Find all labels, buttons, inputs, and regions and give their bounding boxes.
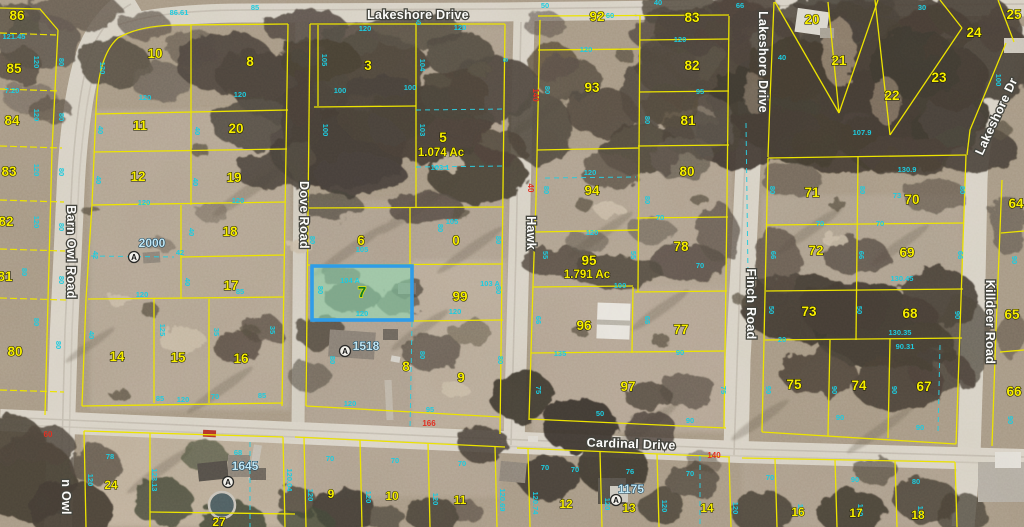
svg-text:71: 71 — [804, 185, 820, 200]
svg-text:120: 120 — [139, 93, 152, 102]
svg-text:73: 73 — [893, 191, 901, 200]
svg-text:80: 80 — [7, 344, 22, 359]
svg-text:40: 40 — [526, 184, 535, 193]
svg-text:130.45: 130.45 — [891, 274, 914, 283]
svg-text:77: 77 — [673, 322, 688, 337]
svg-text:40: 40 — [778, 53, 786, 62]
svg-text:Lakeshore Drive: Lakeshore Drive — [756, 11, 770, 113]
svg-text:20: 20 — [804, 12, 819, 27]
svg-text:17: 17 — [849, 506, 863, 520]
svg-text:8: 8 — [501, 58, 510, 62]
svg-text:120.74: 120.74 — [531, 492, 540, 516]
svg-text:Barn Owl Road: Barn Owl Road — [64, 205, 78, 299]
svg-text:85: 85 — [258, 391, 266, 400]
svg-text:80: 80 — [316, 286, 325, 294]
svg-text:80: 80 — [679, 164, 694, 179]
svg-text:130.9: 130.9 — [898, 165, 917, 174]
svg-text:55: 55 — [629, 251, 638, 259]
svg-text:60: 60 — [44, 430, 53, 439]
svg-text:90: 90 — [851, 475, 859, 484]
svg-text:42: 42 — [91, 251, 100, 259]
svg-text:80: 80 — [958, 186, 967, 194]
svg-text:90: 90 — [676, 348, 684, 357]
svg-text:17: 17 — [223, 278, 238, 293]
svg-text:60: 60 — [606, 11, 614, 20]
svg-text:66: 66 — [857, 251, 866, 259]
svg-text:80: 80 — [643, 116, 652, 124]
svg-text:90.31: 90.31 — [896, 342, 915, 351]
svg-text:99: 99 — [452, 289, 467, 304]
svg-text:80: 80 — [494, 236, 503, 244]
svg-text:90: 90 — [890, 386, 899, 394]
svg-text:1645: 1645 — [232, 459, 259, 473]
svg-text:35: 35 — [268, 326, 277, 334]
svg-text:80: 80 — [32, 318, 41, 326]
svg-text:90: 90 — [764, 386, 773, 394]
svg-text:66: 66 — [1006, 384, 1022, 399]
svg-text:70: 70 — [458, 459, 466, 468]
svg-text:105: 105 — [446, 217, 459, 226]
svg-text:70: 70 — [686, 469, 694, 478]
svg-text:65: 65 — [1004, 307, 1020, 322]
svg-text:20: 20 — [228, 121, 243, 136]
svg-text:120: 120 — [86, 474, 95, 487]
svg-text:120: 120 — [234, 90, 247, 99]
svg-text:6: 6 — [357, 233, 365, 248]
svg-text:21: 21 — [831, 53, 847, 68]
svg-text:40: 40 — [654, 0, 662, 7]
svg-text:80: 80 — [912, 477, 920, 486]
svg-text:85: 85 — [6, 61, 22, 76]
svg-text:90: 90 — [953, 311, 962, 319]
svg-text:2000: 2000 — [139, 236, 166, 250]
svg-text:105: 105 — [320, 54, 329, 67]
svg-text:123.13: 123.13 — [150, 469, 159, 492]
svg-text:107.9: 107.9 — [853, 128, 872, 137]
svg-text:121.45: 121.45 — [3, 32, 26, 41]
svg-text:70: 70 — [766, 473, 774, 482]
svg-text:15: 15 — [170, 350, 186, 365]
svg-text:n Owl: n Owl — [59, 479, 73, 515]
svg-text:86: 86 — [9, 8, 25, 23]
svg-text:93: 93 — [584, 80, 600, 95]
svg-text:70: 70 — [696, 261, 704, 270]
svg-text:19: 19 — [226, 170, 241, 185]
svg-text:90: 90 — [686, 416, 694, 425]
svg-text:40: 40 — [191, 178, 200, 186]
svg-text:80: 80 — [643, 196, 652, 204]
svg-text:9: 9 — [328, 487, 335, 501]
svg-text:72: 72 — [808, 243, 823, 258]
svg-text:120: 120 — [584, 168, 597, 177]
svg-text:40: 40 — [94, 176, 103, 184]
svg-text:68: 68 — [234, 448, 242, 457]
svg-text:50: 50 — [855, 306, 864, 314]
svg-text:97: 97 — [620, 379, 635, 394]
svg-text:100: 100 — [994, 74, 1003, 87]
svg-text:22: 22 — [884, 88, 899, 103]
svg-text:120: 120 — [359, 24, 372, 33]
svg-text:12: 12 — [559, 497, 573, 511]
svg-text:120: 120 — [454, 23, 467, 32]
svg-text:120: 120 — [32, 164, 41, 177]
svg-text:14: 14 — [109, 349, 125, 364]
svg-text:25: 25 — [1006, 7, 1022, 22]
svg-text:86.61: 86.61 — [170, 8, 189, 17]
svg-text:90: 90 — [916, 423, 924, 432]
svg-text:103.1: 103.1 — [431, 163, 450, 172]
svg-text:120: 120 — [32, 109, 41, 122]
svg-text:80: 80 — [543, 86, 552, 94]
svg-text:75: 75 — [786, 377, 802, 392]
svg-text:1.074 Ac: 1.074 Ac — [418, 147, 465, 159]
svg-text:74: 74 — [851, 378, 867, 393]
svg-text:A: A — [225, 478, 231, 487]
svg-text:A: A — [613, 496, 619, 505]
svg-text:10: 10 — [147, 46, 162, 61]
svg-text:0: 0 — [452, 233, 460, 248]
svg-text:Dove Road: Dove Road — [297, 181, 311, 249]
svg-text:Lakeshore Drive: Lakeshore Drive — [367, 8, 469, 22]
svg-text:80: 80 — [436, 224, 445, 232]
svg-text:70: 70 — [876, 219, 884, 228]
svg-text:140: 140 — [707, 451, 721, 460]
svg-text:5: 5 — [439, 130, 447, 145]
svg-text:166: 166 — [422, 419, 436, 428]
svg-text:A: A — [131, 253, 137, 262]
svg-text:81: 81 — [680, 113, 696, 128]
svg-text:76: 76 — [626, 467, 634, 476]
svg-text:80: 80 — [494, 286, 503, 294]
svg-text:120: 120 — [674, 35, 687, 44]
svg-text:80: 80 — [496, 356, 505, 364]
svg-text:40: 40 — [193, 127, 202, 135]
svg-text:14: 14 — [700, 501, 714, 515]
svg-text:20: 20 — [778, 335, 786, 344]
svg-text:85: 85 — [251, 3, 259, 12]
svg-text:80: 80 — [20, 268, 29, 276]
svg-text:11: 11 — [133, 118, 148, 133]
svg-text:95: 95 — [581, 253, 597, 268]
svg-text:120: 120 — [138, 198, 151, 207]
svg-text:66: 66 — [736, 1, 744, 10]
svg-text:Killdeer Road: Killdeer Road — [983, 280, 997, 364]
svg-text:50: 50 — [767, 306, 776, 314]
svg-text:70: 70 — [571, 465, 579, 474]
svg-text:90: 90 — [830, 386, 839, 394]
svg-text:80: 80 — [542, 186, 551, 194]
svg-text:16: 16 — [233, 351, 249, 366]
svg-text:120: 120 — [580, 45, 593, 54]
svg-text:120: 120 — [660, 500, 669, 513]
svg-text:120: 120 — [586, 228, 599, 237]
svg-text:30: 30 — [918, 3, 926, 12]
svg-text:100: 100 — [334, 86, 347, 95]
svg-text:24: 24 — [104, 478, 118, 492]
svg-text:90: 90 — [1010, 256, 1019, 264]
svg-text:66: 66 — [956, 251, 965, 259]
svg-text:50: 50 — [596, 409, 604, 418]
svg-text:120: 120 — [136, 290, 149, 299]
svg-text:120: 120 — [177, 395, 190, 404]
svg-text:95: 95 — [696, 87, 704, 96]
svg-text:1518: 1518 — [353, 339, 380, 353]
svg-text:1.791 Ac: 1.791 Ac — [564, 269, 611, 281]
svg-text:80: 80 — [54, 341, 63, 349]
svg-text:120: 120 — [449, 307, 462, 316]
svg-text:66: 66 — [643, 316, 652, 324]
svg-text:1175: 1175 — [618, 482, 644, 496]
svg-text:8: 8 — [402, 359, 410, 374]
svg-text:120: 120 — [431, 493, 440, 506]
svg-text:70: 70 — [541, 463, 549, 472]
svg-text:90: 90 — [1006, 416, 1015, 424]
svg-text:70: 70 — [904, 192, 919, 207]
svg-text:3: 3 — [364, 58, 372, 73]
svg-text:73: 73 — [801, 304, 817, 319]
svg-text:100: 100 — [404, 83, 417, 92]
svg-text:35: 35 — [212, 328, 221, 336]
svg-text:120: 120 — [364, 491, 373, 504]
svg-text:80: 80 — [328, 356, 337, 364]
svg-text:Hawk: Hawk — [524, 216, 538, 250]
svg-text:68: 68 — [902, 306, 918, 321]
svg-text:104: 104 — [418, 59, 427, 72]
svg-text:80: 80 — [858, 186, 867, 194]
svg-text:70: 70 — [656, 213, 664, 222]
svg-text:120: 120 — [344, 399, 357, 408]
svg-text:40: 40 — [187, 228, 196, 236]
svg-text:140: 140 — [531, 88, 540, 102]
svg-text:18: 18 — [911, 508, 925, 522]
svg-text:70: 70 — [211, 392, 219, 401]
svg-text:90: 90 — [836, 413, 844, 422]
svg-text:12: 12 — [130, 169, 145, 184]
svg-text:13: 13 — [622, 501, 636, 515]
svg-text:120: 120 — [731, 502, 740, 515]
svg-text:83: 83 — [1, 164, 17, 179]
svg-text:16: 16 — [791, 505, 805, 519]
svg-text:Finch Road: Finch Road — [744, 268, 758, 339]
svg-text:27: 27 — [212, 515, 226, 527]
svg-text:100: 100 — [321, 124, 330, 137]
svg-text:120: 120 — [32, 216, 41, 229]
svg-text:80: 80 — [768, 186, 777, 194]
svg-text:42: 42 — [176, 248, 184, 257]
svg-text:8: 8 — [246, 54, 254, 69]
svg-text:66: 66 — [769, 251, 778, 259]
svg-text:67: 67 — [916, 379, 931, 394]
svg-text:80: 80 — [57, 168, 66, 176]
svg-text:80: 80 — [57, 113, 66, 121]
svg-text:96: 96 — [576, 318, 592, 333]
svg-text:78: 78 — [106, 452, 114, 461]
svg-text:75: 75 — [534, 386, 543, 394]
svg-text:7: 7 — [358, 284, 366, 301]
svg-text:85: 85 — [156, 394, 164, 403]
svg-text:120.69: 120.69 — [498, 489, 507, 512]
svg-text:70: 70 — [816, 219, 824, 228]
svg-text:81: 81 — [0, 269, 13, 284]
svg-text:94: 94 — [584, 183, 600, 198]
svg-text:120: 120 — [98, 62, 107, 75]
svg-text:82: 82 — [0, 214, 14, 229]
svg-text:9: 9 — [457, 370, 465, 385]
svg-text:120: 120 — [306, 489, 315, 502]
svg-text:40: 40 — [96, 126, 105, 134]
svg-text:92: 92 — [589, 9, 604, 24]
svg-text:23: 23 — [931, 70, 947, 85]
svg-text:40: 40 — [183, 278, 192, 286]
svg-text:135: 135 — [554, 349, 567, 358]
svg-text:95: 95 — [426, 405, 434, 414]
svg-text:120: 120 — [356, 309, 369, 318]
svg-text:83: 83 — [684, 10, 700, 25]
svg-text:70: 70 — [391, 456, 399, 465]
svg-text:103: 103 — [418, 124, 427, 137]
svg-text:120: 120 — [32, 56, 41, 69]
svg-text:7.20: 7.20 — [5, 86, 20, 95]
svg-text:130.35: 130.35 — [889, 328, 912, 337]
svg-text:120: 120 — [232, 196, 245, 205]
svg-text:84: 84 — [4, 113, 20, 128]
svg-text:55: 55 — [541, 251, 550, 259]
svg-text:80: 80 — [418, 351, 427, 359]
svg-text:40: 40 — [87, 331, 96, 339]
svg-text:64: 64 — [1008, 196, 1024, 211]
svg-text:24: 24 — [966, 25, 982, 40]
svg-text:100: 100 — [614, 281, 627, 290]
svg-text:69: 69 — [899, 245, 914, 260]
svg-text:11: 11 — [454, 493, 467, 507]
svg-text:75: 75 — [719, 386, 728, 394]
svg-text:50: 50 — [541, 1, 549, 10]
svg-text:10: 10 — [385, 489, 399, 503]
svg-text:120.04: 120.04 — [285, 469, 294, 493]
svg-text:125: 125 — [158, 324, 167, 337]
svg-text:66: 66 — [534, 316, 543, 324]
svg-text:18: 18 — [222, 224, 238, 239]
svg-text:78: 78 — [673, 239, 689, 254]
svg-text:82: 82 — [684, 58, 699, 73]
svg-text:80: 80 — [57, 58, 66, 66]
svg-text:A: A — [342, 347, 348, 356]
svg-text:70: 70 — [326, 454, 334, 463]
